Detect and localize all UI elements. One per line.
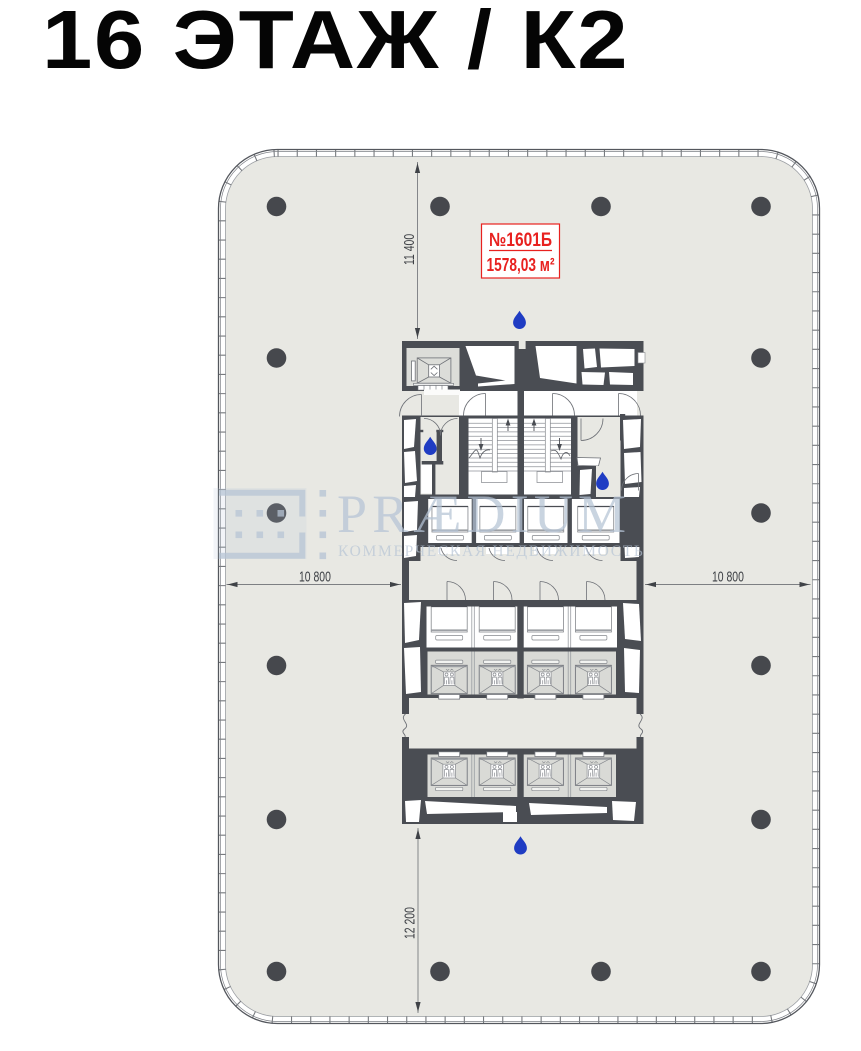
svg-text:КОММЕРЧЕСКАЯ НЕДВИЖИМОСТЬ: КОММЕРЧЕСКАЯ НЕДВИЖИМОСТЬ <box>338 543 646 560</box>
svg-text:10 800: 10 800 <box>299 569 331 585</box>
svg-text:PRÆDIUM: PRÆDIUM <box>337 484 630 544</box>
svg-text:16 ЭТАЖ / К2: 16 ЭТАЖ / К2 <box>42 0 629 86</box>
svg-text:№1601Б: №1601Б <box>489 230 552 251</box>
svg-text:12 200: 12 200 <box>402 907 418 939</box>
svg-text:1578,03 м²: 1578,03 м² <box>487 254 555 275</box>
svg-text:11 400: 11 400 <box>401 234 417 265</box>
svg-text:10 800: 10 800 <box>712 569 744 585</box>
